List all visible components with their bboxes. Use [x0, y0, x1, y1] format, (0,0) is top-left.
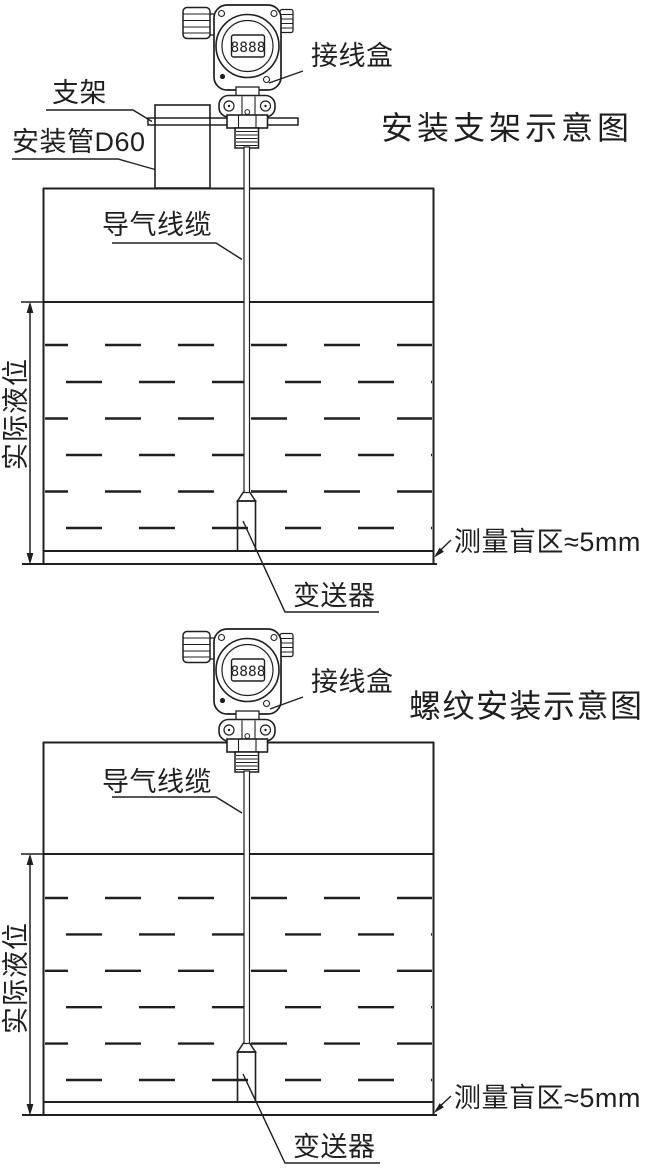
tank1-liquid-dashes [32, 345, 433, 528]
blind-zone-label-2: 测量盲区≈5mm [454, 1084, 641, 1112]
tank2-liquid-dashes [32, 898, 433, 1080]
mounting-pipe-label: 安装管D60 [12, 128, 146, 156]
arrow-down-icon [27, 1104, 34, 1116]
arrow-down-icon [27, 553, 34, 565]
air-cable-leader [112, 243, 242, 260]
support-bracket-plate [148, 118, 298, 125]
air-cable-label-2: 导气线缆 [102, 768, 212, 796]
air-cable-label-1: 导气线缆 [102, 211, 212, 239]
blind-zone-label-1: 测量盲区≈5mm [454, 528, 641, 556]
actual-level-label-1: 实际液位 [2, 354, 30, 474]
probe-taper [238, 492, 256, 501]
junction-box-label-2: 接线盒 [311, 668, 394, 696]
bracket-leader [46, 110, 152, 122]
air-cable-leader [112, 797, 242, 813]
transmitter-head-1 [183, 5, 293, 148]
bracket-label: 支架 [52, 79, 107, 107]
arrow-up-icon [27, 302, 34, 314]
tank1-outline [22, 188, 437, 564]
transmitter-label-2: 变送器 [293, 1133, 376, 1161]
arrow-up-icon [27, 854, 34, 866]
transmitter-label-1: 变送器 [293, 582, 376, 610]
diagram2-line-art [21, 629, 451, 1163]
mounting-pipe-leader [12, 159, 155, 170]
installation-diagram-page: 8888 [0, 0, 650, 1171]
diagram2-title: 螺纹安装示意图 [409, 690, 644, 724]
actual-level-label-2: 实际液位 [2, 918, 30, 1038]
transmitter-head-2 [183, 629, 293, 772]
air-guide-cable-2 [244, 771, 250, 1044]
air-guide-cable-1 [244, 147, 250, 493]
junction-box-label-1: 接线盒 [311, 42, 394, 70]
tank2-outline [22, 742, 437, 1115]
diagram1-title: 安装支架示意图 [381, 112, 633, 146]
